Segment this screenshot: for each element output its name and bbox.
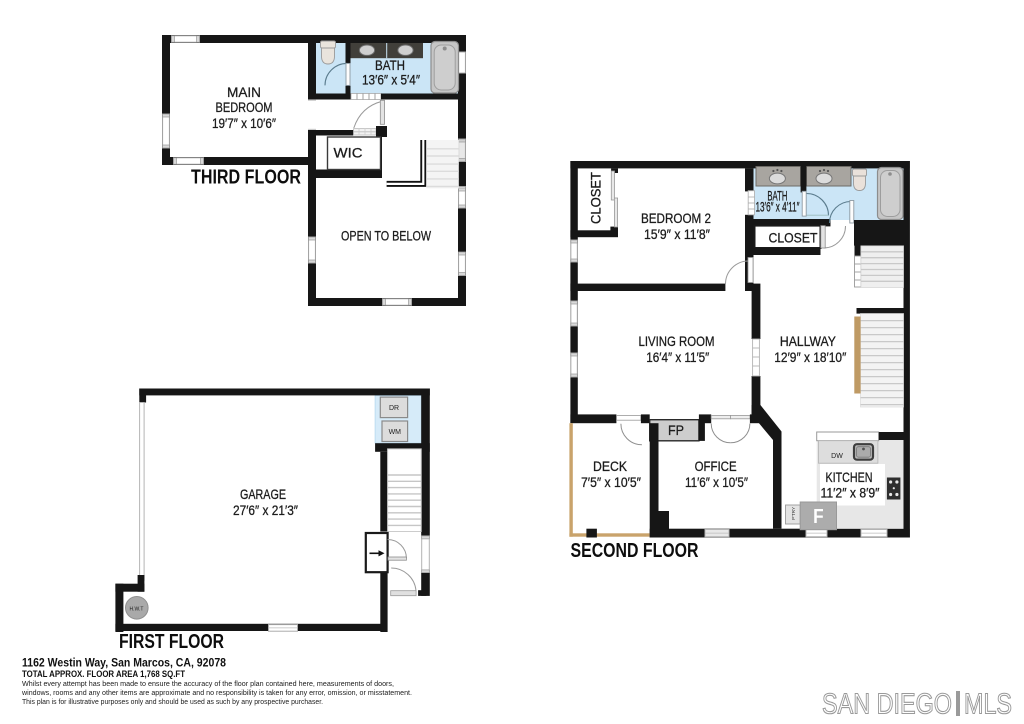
svg-text:7′5″ x 10′5″: 7′5″ x 10′5″ [581, 475, 641, 490]
svg-text:DW: DW [831, 453, 843, 460]
svg-text:THIRD FLOOR: THIRD FLOOR [191, 166, 301, 189]
svg-text:11′6″ x 10′5″: 11′6″ x 10′5″ [685, 475, 748, 490]
svg-text:BEDROOM 2: BEDROOM 2 [641, 211, 711, 226]
svg-text:CLOSET: CLOSET [589, 172, 604, 224]
svg-text:DR: DR [389, 405, 399, 412]
svg-text:windows, rooms and any other i: windows, rooms and any other items are a… [21, 688, 412, 697]
svg-text:15′9″ x 11′8″: 15′9″ x 11′8″ [644, 227, 710, 242]
svg-text:FP: FP [668, 423, 684, 438]
svg-text:WIC: WIC [334, 146, 363, 161]
svg-text:13′6″ x 4′11″: 13′6″ x 4′11″ [756, 200, 800, 215]
svg-text:KITCHEN: KITCHEN [826, 470, 873, 485]
svg-text:27′6″ x 21′3″: 27′6″ x 21′3″ [233, 503, 298, 518]
svg-text:TOTAL APPROX. FLOOR AREA 1,768: TOTAL APPROX. FLOOR AREA 1,768 SQ.FT [22, 669, 185, 679]
svg-text:P′TRY: P′TRY [791, 507, 796, 520]
svg-text:WM: WM [389, 429, 402, 436]
svg-text:11′2″ x 8′9″: 11′2″ x 8′9″ [821, 486, 880, 501]
svg-text:F: F [813, 506, 824, 528]
svg-text:SAN DIEGO: SAN DIEGO [822, 689, 952, 721]
svg-text:LIVING ROOM: LIVING ROOM [639, 334, 715, 349]
svg-text:This plan is for illustrative: This plan is for illustrative purposes o… [22, 697, 323, 706]
svg-text:Whilst every attempt has been: Whilst every attempt has been made to en… [22, 679, 394, 688]
svg-text:MAIN: MAIN [227, 85, 261, 100]
svg-text:CLOSET: CLOSET [769, 231, 818, 246]
svg-text:MLS: MLS [964, 689, 1012, 721]
svg-text:13′6″ x 5′4″: 13′6″ x 5′4″ [362, 73, 420, 88]
svg-text:HALLWAY: HALLWAY [780, 334, 836, 349]
svg-text:FIRST FLOOR: FIRST FLOOR [119, 630, 224, 653]
svg-text:OFFICE: OFFICE [695, 459, 737, 474]
svg-text:BATH: BATH [375, 58, 405, 73]
svg-text:OPEN TO BELOW: OPEN TO BELOW [341, 229, 431, 244]
svg-text:BEDROOM: BEDROOM [216, 100, 273, 115]
svg-text:1162 Westin Way, San Marcos, C: 1162 Westin Way, San Marcos, CA, 92078 [22, 656, 226, 670]
svg-text:12′9″ x 18′10″: 12′9″ x 18′10″ [774, 350, 846, 365]
svg-text:19′7″ x 10′6″: 19′7″ x 10′6″ [212, 116, 276, 131]
svg-text:GARAGE: GARAGE [240, 487, 286, 502]
svg-text:DECK: DECK [593, 459, 627, 474]
svg-text:16′4″ x 11′5″: 16′4″ x 11′5″ [646, 350, 709, 365]
svg-text:H.W.T: H.W.T [130, 607, 144, 613]
svg-text:SECOND FLOOR: SECOND FLOOR [571, 539, 699, 562]
